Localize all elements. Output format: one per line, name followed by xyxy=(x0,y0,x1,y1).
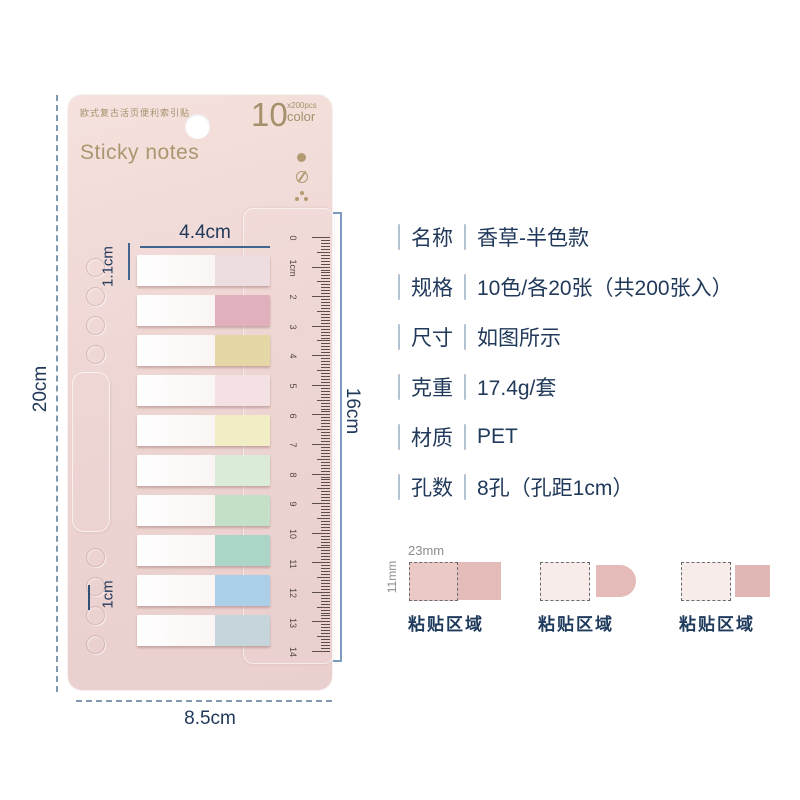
spec-row: 规格10色/各20张（共200张入） xyxy=(398,272,788,302)
ruler-number: 1cm xyxy=(283,256,303,280)
spec-row: 孔数8孔（孔距1cm） xyxy=(398,472,788,502)
spec-value: 8孔（孔距1cm） xyxy=(477,472,633,502)
ruler-number: 10 xyxy=(283,522,303,546)
package-title: Sticky notes xyxy=(80,141,199,165)
sticky-tab-6 xyxy=(137,455,270,486)
tab-diagram-rounded xyxy=(596,565,636,597)
separator xyxy=(464,224,466,250)
ruler-number: 9 xyxy=(283,492,303,516)
ruler-number: 8 xyxy=(283,463,303,487)
triple-dots-icon xyxy=(295,191,309,203)
ruler-number: 6 xyxy=(283,404,303,428)
spec-row: 尺寸如图所示 xyxy=(398,322,788,352)
sticky-tab-10 xyxy=(137,615,270,646)
ruler-length-label: 16cm xyxy=(341,383,363,439)
sticky-tab-7 xyxy=(137,495,270,526)
width-dash-line xyxy=(76,700,332,702)
binding-hole xyxy=(86,548,105,567)
spec-value: 10色/各20张（共200张入） xyxy=(477,272,733,302)
separator xyxy=(398,274,400,300)
spec-value: PET xyxy=(477,425,518,449)
binding-hole xyxy=(86,316,105,335)
sticky-tab-3 xyxy=(137,335,270,366)
sticky-tab-2 xyxy=(137,295,270,326)
separator xyxy=(398,224,400,250)
ruler-number: 0 xyxy=(283,226,303,250)
spec-label: 名称 xyxy=(411,222,453,252)
spec-row: 名称香草-半色款 xyxy=(398,222,788,252)
spec-label: 规格 xyxy=(411,272,453,302)
adhesive-caption-3: 粘贴区域 xyxy=(679,610,755,635)
sticky-tab-8 xyxy=(137,535,270,566)
dot-icon xyxy=(297,153,306,162)
adhesive-zone-rounded xyxy=(540,562,590,601)
ruler-number: 4 xyxy=(283,344,303,368)
package-subtitle: 欧式复古活页便利索引贴 xyxy=(80,106,190,119)
hole-pitch-label: 1cm xyxy=(100,567,117,623)
sticky-tab-5 xyxy=(137,415,270,446)
spec-list: 名称香草-半色款规格10色/各20张（共200张入）尺寸如图所示克重17.4g/… xyxy=(398,222,788,522)
circle-slash-icon xyxy=(296,171,308,183)
tab-height-line xyxy=(128,243,130,280)
spec-label: 材质 xyxy=(411,422,453,452)
spec-label: 尺寸 xyxy=(411,322,453,352)
embossed-window xyxy=(72,372,110,532)
separator xyxy=(398,374,400,400)
adhesive-zone-flat xyxy=(409,562,458,601)
hole-pitch-line xyxy=(88,585,90,610)
binding-hole xyxy=(86,635,105,654)
count-details: x200pcs color xyxy=(287,102,317,124)
spec-value: 香草-半色款 xyxy=(477,222,589,252)
sticky-tab-4 xyxy=(137,375,270,406)
sticky-tabs xyxy=(137,255,270,655)
product-infographic: 欧式复古活页便利索引贴 10 x200pcs color Sticky note… xyxy=(0,0,800,800)
spec-row: 克重17.4g/套 xyxy=(398,372,788,402)
ruler-number: 11 xyxy=(283,552,303,576)
ruler-number: 5 xyxy=(283,374,303,398)
tab-height-label: 1.1cm xyxy=(100,239,117,295)
adhesive-caption-2: 粘贴区域 xyxy=(538,610,614,635)
height-dash-line xyxy=(56,95,58,692)
ruler-number: 2 xyxy=(283,285,303,309)
adhesive-height-label: 11mm xyxy=(385,555,399,599)
ruler-number: 14 xyxy=(283,640,303,664)
spec-value: 如图所示 xyxy=(477,322,561,352)
ruler-number: 13 xyxy=(283,611,303,635)
adhesive-width-label: 23mm xyxy=(408,543,444,558)
spec-row: 材质PET xyxy=(398,422,788,452)
tab-width-line xyxy=(140,246,270,248)
card-width-label: 8.5cm xyxy=(150,708,270,730)
ruler-number: 12 xyxy=(283,581,303,605)
bracket-cap-bottom xyxy=(333,660,341,662)
color-count: 10 xyxy=(251,96,288,134)
ruler-ticks xyxy=(306,237,330,653)
card-height-label: 20cm xyxy=(30,356,52,422)
separator xyxy=(398,424,400,450)
sticky-tab-1 xyxy=(137,255,270,286)
binding-hole xyxy=(86,345,105,364)
hang-hole xyxy=(185,114,210,139)
separator xyxy=(464,424,466,450)
ruler-number: 3 xyxy=(283,315,303,339)
tab-width-label: 4.4cm xyxy=(140,222,270,244)
separator xyxy=(398,474,400,500)
spec-label: 孔数 xyxy=(411,472,453,502)
bracket-cap-top xyxy=(333,212,341,214)
separator xyxy=(464,274,466,300)
separator xyxy=(464,324,466,350)
separator xyxy=(398,324,400,350)
separator xyxy=(464,474,466,500)
spec-label: 克重 xyxy=(411,372,453,402)
adhesive-zone-square xyxy=(681,562,731,601)
count-unit: color xyxy=(287,110,317,124)
adhesive-caption-1: 粘贴区域 xyxy=(408,610,484,635)
separator xyxy=(464,374,466,400)
spec-value: 17.4g/套 xyxy=(477,372,556,402)
sticky-tab-9 xyxy=(137,575,270,606)
ruler-number: 7 xyxy=(283,433,303,457)
tab-diagram-square xyxy=(735,565,770,597)
